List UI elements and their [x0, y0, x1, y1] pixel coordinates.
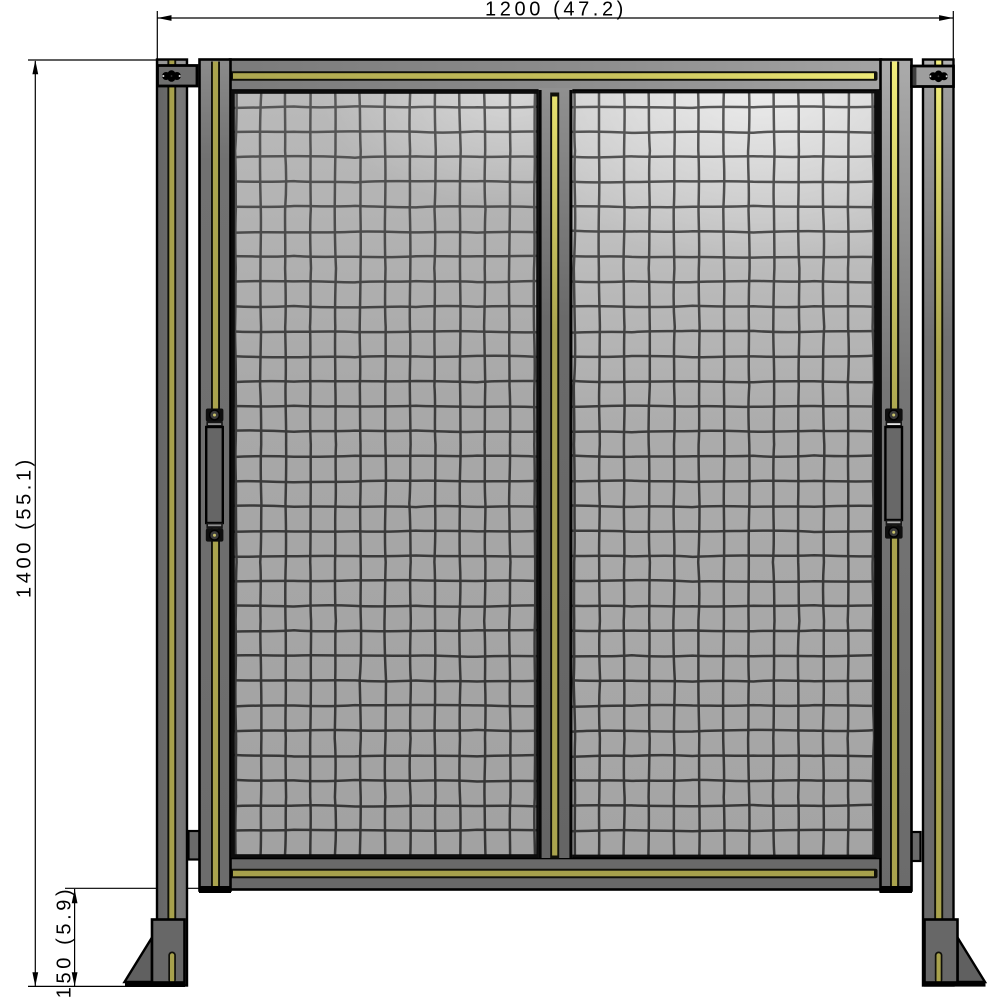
svg-text:1200 (47.2): 1200 (47.2) — [485, 0, 627, 21]
svg-text:150 (5.9): 150 (5.9) — [54, 886, 76, 998]
svg-text:1400 (55.1): 1400 (55.1) — [14, 456, 36, 598]
